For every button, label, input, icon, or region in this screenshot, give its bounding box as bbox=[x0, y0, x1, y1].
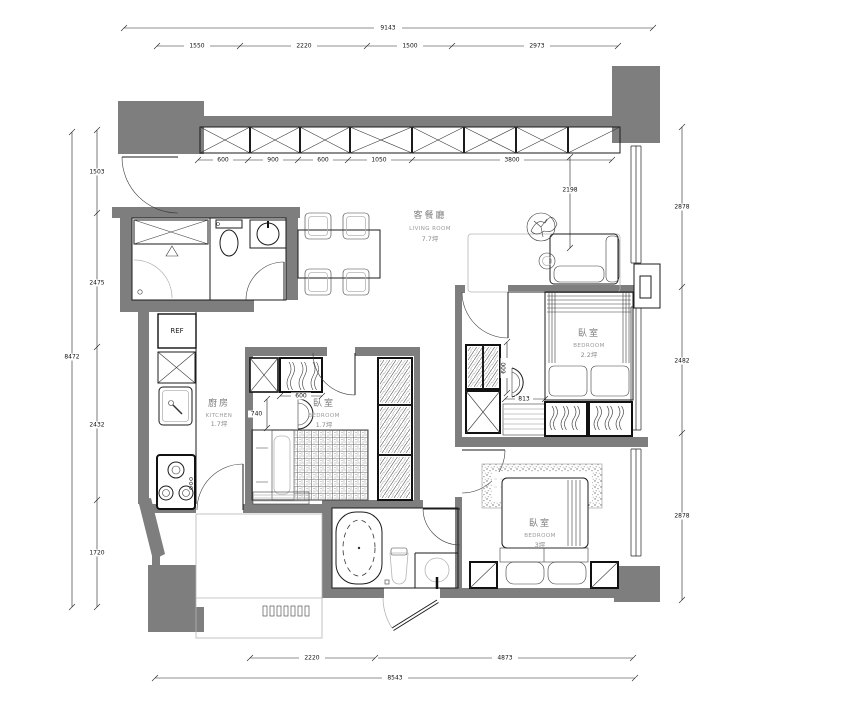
balcony-outline bbox=[196, 514, 322, 638]
wall-left-upper bbox=[120, 218, 132, 306]
bathtub bbox=[336, 512, 382, 584]
rug bbox=[468, 234, 620, 292]
dim-label: 1050 bbox=[371, 157, 386, 164]
entry-closet-row bbox=[200, 127, 620, 153]
service-door bbox=[383, 598, 439, 631]
dim-label: 4873 bbox=[497, 655, 512, 662]
dining-chairs bbox=[305, 213, 369, 295]
dim-top-segments: 1550 2220 1500 2973 bbox=[154, 43, 621, 50]
wall-bed22-bed3 bbox=[455, 437, 648, 447]
bath2-door bbox=[423, 509, 460, 545]
bedroom-small-area: 1.7坪 bbox=[316, 421, 333, 429]
hall-bathroom bbox=[132, 218, 286, 300]
dim-bottom-overall: 8543 bbox=[152, 675, 638, 682]
sofa-back-cushion bbox=[606, 236, 619, 282]
plant bbox=[527, 213, 557, 269]
dim-label: 3800 bbox=[504, 157, 519, 164]
main-bathroom bbox=[332, 508, 460, 631]
bedroom-mid-name-en: BEDROOM bbox=[573, 343, 605, 349]
wall-bed17-hall bbox=[414, 347, 420, 504]
sofa-seat-cushion bbox=[554, 266, 604, 282]
dim-label: 2878 bbox=[674, 204, 689, 211]
kitchen-area: 1.7坪 bbox=[211, 420, 228, 428]
dim-label: 2198 bbox=[562, 187, 577, 194]
bed22-shelf bbox=[466, 345, 500, 389]
wall-bed17-top-left bbox=[245, 347, 327, 356]
bed22-wardrobes bbox=[545, 402, 632, 436]
balcony bbox=[196, 514, 322, 638]
refrigerator: REF bbox=[158, 314, 196, 348]
dim-label: 8543 bbox=[387, 675, 402, 682]
bed3-bed bbox=[500, 478, 588, 584]
kitchen-name-zh: 廚房 bbox=[208, 397, 230, 409]
bedroom-small-name-zh: 臥室 bbox=[313, 397, 335, 409]
bedroom-master-name-zh: 臥室 bbox=[529, 517, 551, 529]
sofa bbox=[550, 234, 618, 284]
closet-outline bbox=[200, 127, 620, 153]
dim-label: 2475 bbox=[89, 280, 104, 287]
dining-set bbox=[298, 213, 380, 295]
bed17-shelf-unit bbox=[378, 358, 412, 500]
dim-label: 9143 bbox=[380, 25, 395, 32]
stove bbox=[157, 455, 195, 509]
dim-label: 2220 bbox=[296, 43, 311, 50]
wall-bath2-left bbox=[322, 500, 332, 598]
wall-bath-top bbox=[112, 207, 300, 218]
dim-bottom-segments: 2220 4873 bbox=[247, 655, 636, 662]
wall-top bbox=[200, 116, 624, 127]
bath2-sink bbox=[415, 553, 458, 589]
bed17-wardrobe bbox=[280, 358, 322, 392]
bed17-x-closet bbox=[250, 358, 278, 392]
wall-kitchen-bottom-right bbox=[243, 504, 327, 513]
dim-left-overall: 8472 bbox=[59, 129, 85, 610]
sofa-area bbox=[468, 213, 620, 292]
ac-unit bbox=[634, 264, 660, 308]
wall-bath2-bottom-right bbox=[440, 588, 455, 598]
dim-closet-row: 600 900 600 1050 3800 bbox=[195, 157, 615, 164]
bed22-rug bbox=[503, 404, 546, 435]
floor-plan-drawing: REF bbox=[0, 0, 860, 705]
wall-bath-right bbox=[286, 218, 298, 300]
kitchen: REF bbox=[157, 312, 243, 510]
bedroom-master-area: 3坪 bbox=[535, 541, 546, 549]
kitchen-sink bbox=[159, 387, 192, 425]
balcony-vent-grille bbox=[263, 606, 309, 616]
dim-right-segments: 2878 2482 2878 bbox=[669, 124, 695, 603]
bathroom-sink bbox=[250, 220, 286, 248]
bedroom-mid-area: 2.2坪 bbox=[581, 351, 598, 359]
wall-kitchen-left bbox=[138, 312, 149, 504]
room-label-kitchen: 廚房 KITCHEN 1.7坪 bbox=[206, 397, 233, 428]
windows bbox=[631, 146, 660, 556]
dim-label: 2973 bbox=[529, 43, 544, 50]
living-area: 7.7坪 bbox=[422, 235, 439, 243]
floor-plan: REF bbox=[0, 0, 860, 705]
window-living bbox=[631, 146, 641, 263]
dim-label: 900 bbox=[267, 157, 279, 164]
wall-bed17-top-right bbox=[355, 347, 420, 356]
dim-label: 8472 bbox=[64, 354, 79, 361]
dim-label: 2878 bbox=[674, 513, 689, 520]
dim-label: 1550 bbox=[189, 43, 204, 50]
living-name-en: LIVING ROOM bbox=[409, 226, 451, 232]
bed22-x-closet bbox=[466, 391, 500, 433]
dim-label: 1500 bbox=[402, 43, 417, 50]
dim-bed22-depth: 600 bbox=[501, 339, 511, 396]
dim-label: 2482 bbox=[674, 358, 689, 365]
shower bbox=[134, 220, 208, 298]
column-top-right bbox=[612, 66, 660, 143]
living-name-zh: 客餐廳 bbox=[413, 209, 446, 221]
corner-cabinet bbox=[158, 352, 195, 383]
dim-label: 740 bbox=[251, 411, 263, 418]
wall-bath-bottom bbox=[120, 300, 254, 312]
wall-stub bbox=[152, 556, 160, 566]
dim-bed22-width: 813 bbox=[502, 396, 548, 403]
room-label-bedroom-small: 臥室 BEDROOM 1.7坪 bbox=[308, 397, 340, 429]
dim-living-depth: 2198 bbox=[557, 154, 583, 251]
bed22-door bbox=[462, 292, 508, 338]
dim-label: 600 bbox=[501, 362, 508, 374]
dim-label: 600 bbox=[217, 157, 229, 164]
room-label-living: 客餐廳 LIVING ROOM 7.7坪 bbox=[409, 209, 451, 243]
dim-label: 2220 bbox=[304, 655, 319, 662]
dim-top-overall: 9143 bbox=[121, 25, 656, 32]
entry-door-swing bbox=[122, 157, 178, 213]
wall-hall-right bbox=[455, 293, 462, 437]
dim-label: 2432 bbox=[89, 422, 104, 429]
bath2-toilet bbox=[385, 548, 408, 584]
dim-label: 1503 bbox=[89, 169, 104, 176]
refrigerator-label: REF bbox=[170, 327, 183, 335]
toilet bbox=[216, 220, 242, 256]
dim-label: 600 bbox=[295, 393, 307, 400]
window-bed3 bbox=[631, 449, 641, 556]
closet-dividers bbox=[250, 127, 568, 153]
bathroom-outline bbox=[132, 218, 286, 300]
closet-x-marks bbox=[200, 127, 620, 153]
dim-left-segments: 1503 2475 2432 1720 bbox=[84, 127, 110, 610]
column-top-left bbox=[118, 101, 204, 154]
kitchen-name-en: KITCHEN bbox=[206, 413, 233, 419]
bedroom-master: 臥室 BEDROOM 3坪 bbox=[462, 450, 618, 588]
dim-label: 1720 bbox=[89, 550, 104, 557]
entry-door bbox=[122, 157, 178, 213]
column-bottom-right bbox=[614, 566, 660, 602]
bedroom-mid-name-zh: 臥室 bbox=[578, 327, 600, 339]
room-label-bedroom-mid: 臥室 BEDROOM 2.2坪 bbox=[573, 327, 605, 359]
bed22-chair bbox=[512, 368, 523, 397]
bathroom-door bbox=[246, 262, 284, 300]
bedroom-master-name-en: BEDROOM bbox=[524, 533, 556, 539]
kitchen-balcony-door bbox=[197, 464, 243, 510]
wall-bed22-top-stub bbox=[455, 285, 465, 293]
bed17-bed bbox=[252, 430, 368, 500]
wall-bath2-top bbox=[332, 500, 423, 508]
bedroom-small-name-en: BEDROOM bbox=[308, 413, 340, 419]
wall-bath2-bottom-left bbox=[322, 588, 384, 598]
bedroom-mid: 臥室 BEDROOM 2.2坪 bbox=[462, 292, 633, 436]
dining-table bbox=[298, 230, 380, 278]
dim-label: 813 bbox=[518, 396, 530, 403]
dim-label: 600 bbox=[317, 157, 329, 164]
